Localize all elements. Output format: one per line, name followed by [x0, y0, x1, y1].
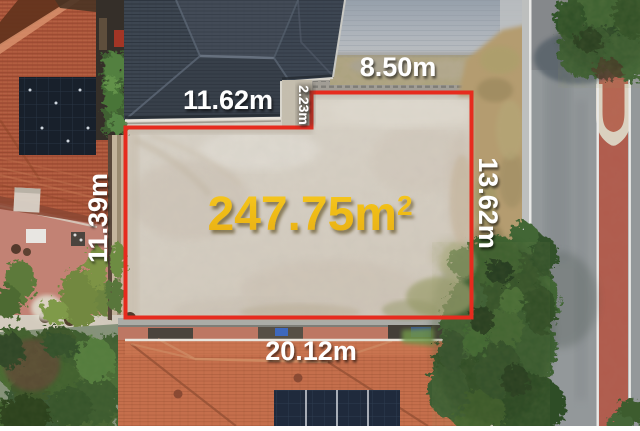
svg-text:11.62m: 11.62m — [183, 85, 273, 115]
svg-text:13.62m: 13.62m — [473, 157, 503, 249]
svg-text:2.23m: 2.23m — [296, 85, 312, 125]
svg-text:20.12m: 20.12m — [265, 336, 357, 366]
svg-text:247.75m2: 247.75m2 — [207, 188, 412, 241]
svg-text:11.39m: 11.39m — [83, 173, 113, 263]
svg-text:8.50m: 8.50m — [360, 52, 437, 82]
